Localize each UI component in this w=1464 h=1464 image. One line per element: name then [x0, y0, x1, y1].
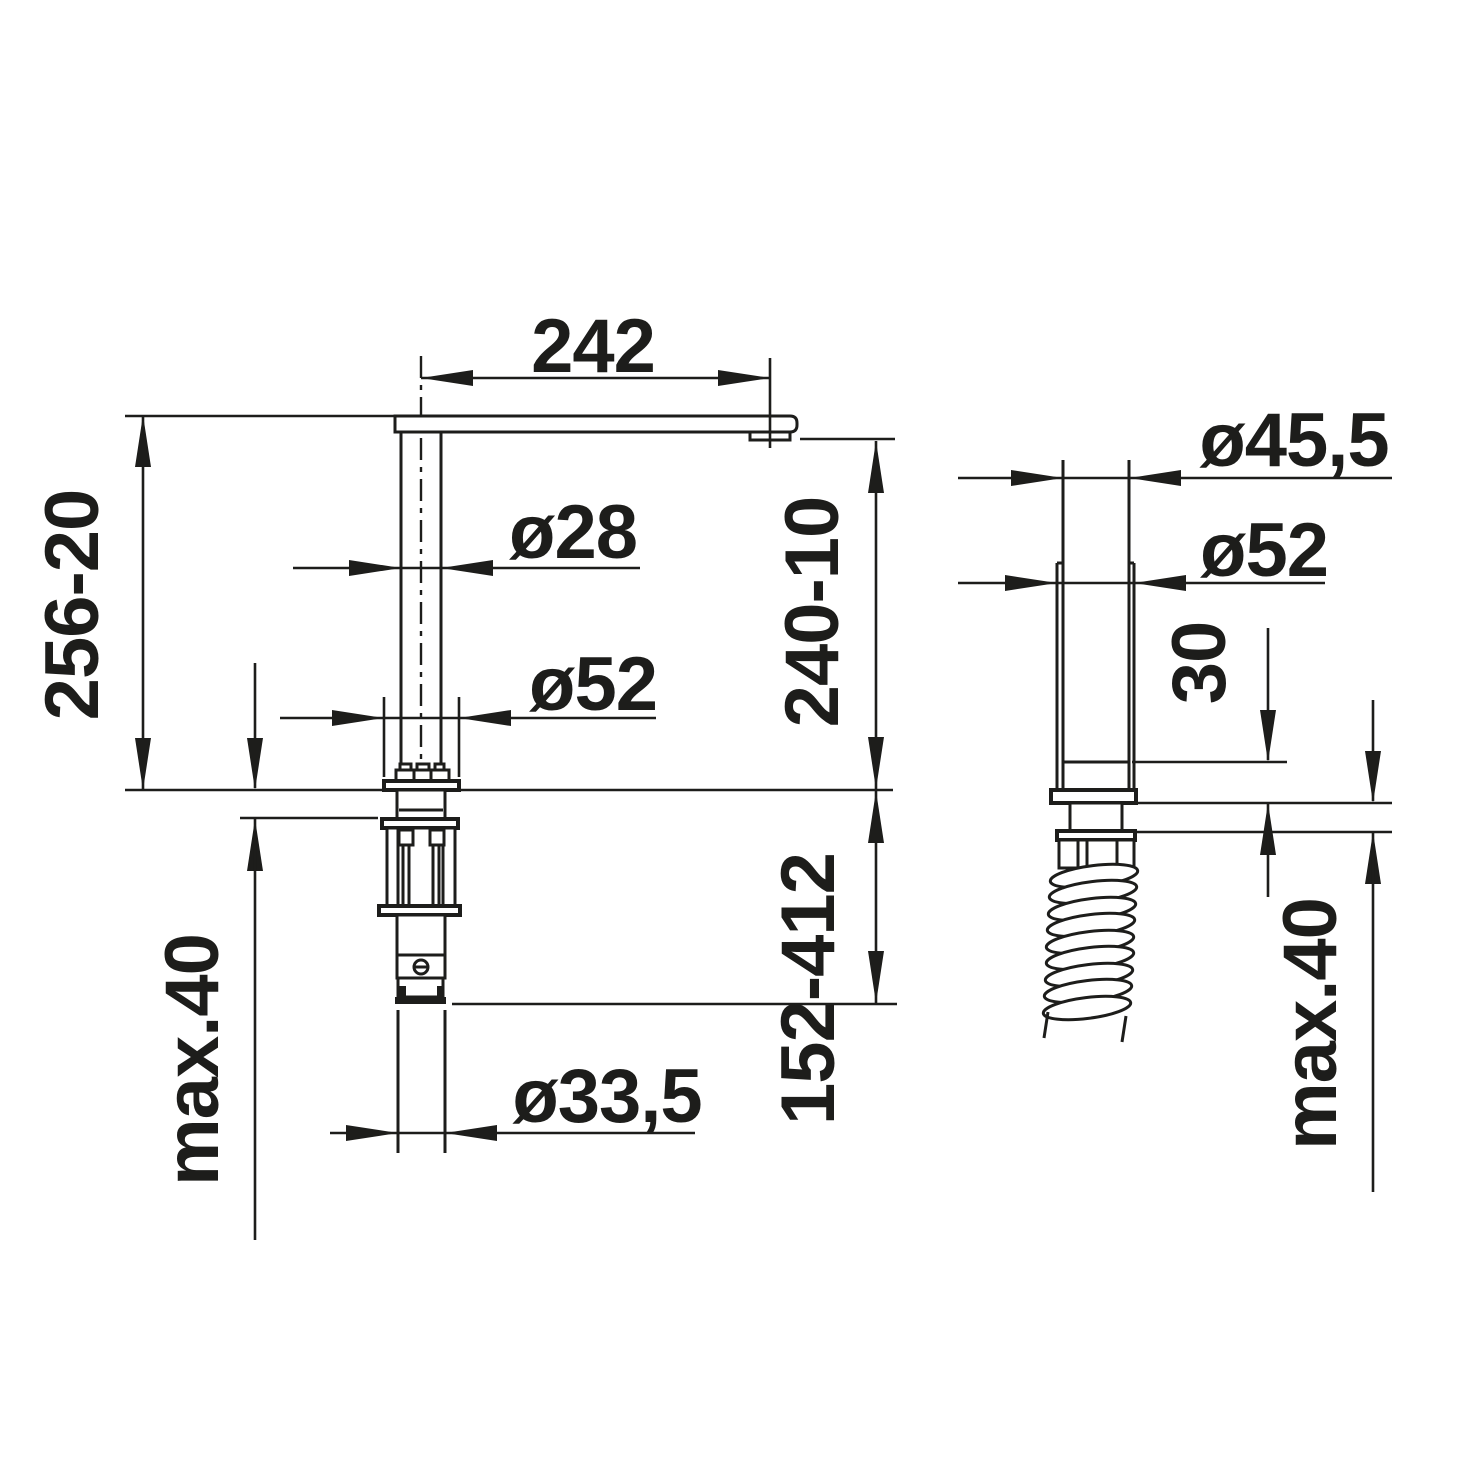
- dim-label-escutcheon-diameter: ø52: [529, 642, 657, 727]
- guide-flange: [1051, 790, 1136, 803]
- dim-label-pipe-diameter: ø28: [509, 490, 637, 575]
- clamp-bolt-head: [399, 830, 413, 845]
- dim-label-guide-inner: ø45,5: [1199, 398, 1388, 483]
- cap-bottom-band: [395, 997, 446, 1004]
- dim-label-flange-offset: 30: [1157, 622, 1242, 705]
- dim-label-outlet-height: 240-10: [770, 497, 855, 728]
- cap-clip: [437, 986, 444, 998]
- dim-label-below-counter: 152-412: [766, 853, 851, 1125]
- counter-body: [397, 790, 445, 819]
- technical-drawing-page: 242 256-20 ø28 ø52 max.40 240-10: [0, 0, 1464, 1464]
- guide-counter-body: [1070, 803, 1122, 831]
- faucet-dimension-drawing: 242 256-20 ø28 ø52 max.40 240-10: [0, 0, 1464, 1464]
- dim-label-guide-outer: ø52: [1200, 508, 1328, 593]
- dim-label-height-range: 256-20: [30, 490, 115, 721]
- clamp-bolt-head: [430, 830, 444, 845]
- dim-label-hose-diameter: ø33,5: [512, 1054, 701, 1139]
- spout-outline: [395, 416, 797, 432]
- dim-label-counter-thickness: max.40: [150, 934, 235, 1186]
- cap-clip: [399, 986, 406, 998]
- dim-label-counter-thickness-right: max.40: [1268, 898, 1353, 1150]
- dim-label-spout-reach: 242: [531, 304, 655, 389]
- background: [0, 0, 1464, 1464]
